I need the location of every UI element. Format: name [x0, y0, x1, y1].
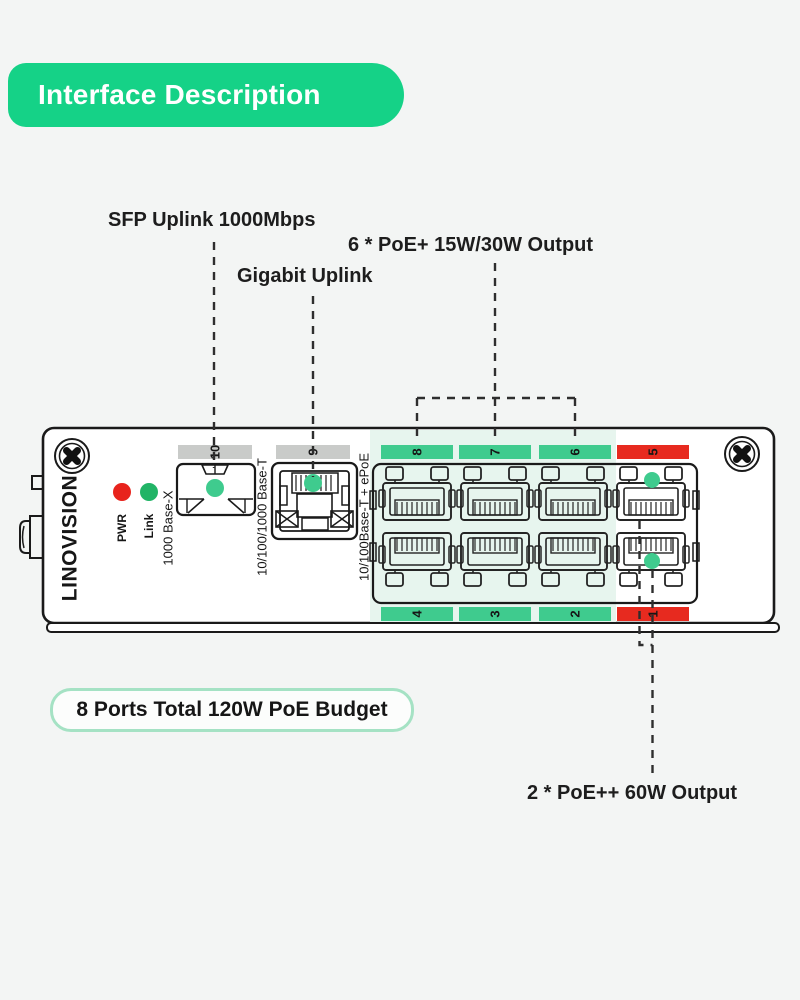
port-1-indicator [644, 553, 660, 569]
port-number-2: 2 [568, 610, 583, 617]
screw-icon [55, 439, 89, 473]
screw-icon [725, 437, 759, 471]
poe-ports-type-label: 10/100Base-T + ePoE [357, 453, 372, 581]
page: Interface Description SFP Uplink 1000Mbp… [0, 0, 800, 1000]
sfp-port-type-label: 1000 Base-X [161, 490, 176, 565]
port-number-4: 4 [410, 610, 425, 618]
link-led [140, 483, 158, 501]
port-number-8: 8 [410, 448, 425, 455]
switch-bottom-strip [47, 623, 779, 632]
callout-line-poe-plus [417, 263, 575, 437]
pwr-led [113, 483, 131, 501]
port-number-3: 3 [488, 610, 503, 617]
port-number-6: 6 [568, 448, 583, 455]
din-mount-tabs [20, 476, 44, 558]
port-5-indicator [644, 472, 660, 488]
port-number-7: 7 [488, 448, 503, 455]
pwr-led-label: PWR [115, 514, 129, 542]
sfp-port-indicator [206, 479, 224, 497]
port-number-5: 5 [646, 448, 661, 455]
brand-text: LINOVISION [59, 475, 82, 601]
link-led-label: Link [142, 513, 156, 538]
switch-illustration: LINOVISION PWR Link 10 9 1000 Base-X [0, 0, 800, 1000]
rj45-uplink-type-label: 10/100/1000 Base-T [255, 458, 270, 576]
